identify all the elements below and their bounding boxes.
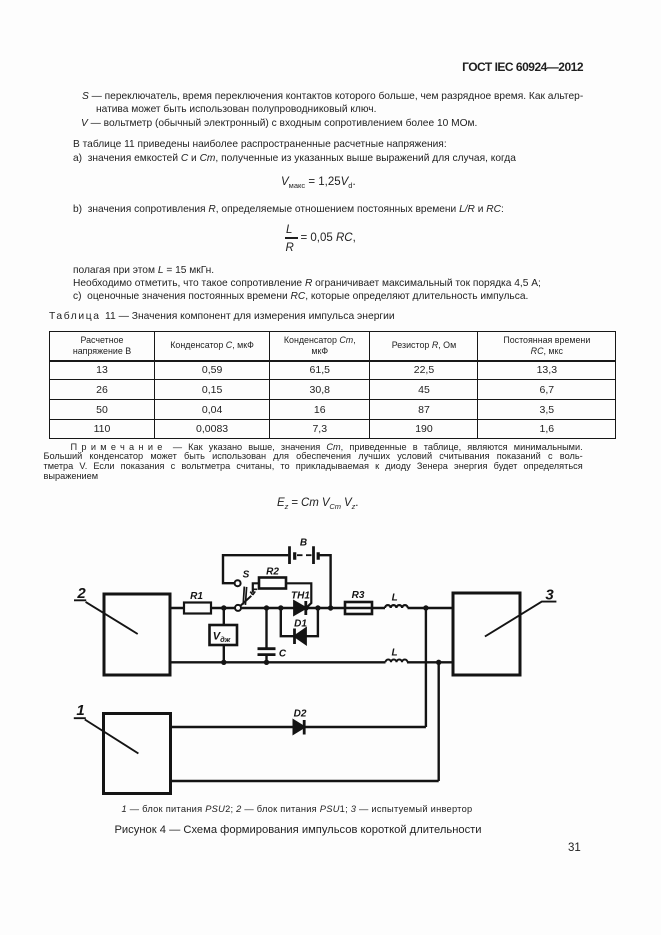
svg-text:TH1: TH1 xyxy=(291,590,310,601)
svg-text:R3: R3 xyxy=(352,590,365,601)
svg-text:L: L xyxy=(392,592,398,603)
svg-text:2: 2 xyxy=(76,585,86,602)
svg-text:C: C xyxy=(279,649,287,660)
svg-text:L: L xyxy=(391,648,397,659)
svg-text:D2: D2 xyxy=(294,709,307,720)
svg-text:3: 3 xyxy=(545,587,554,604)
svg-text:R1: R1 xyxy=(190,591,203,602)
svg-text:Vдж: Vдж xyxy=(213,631,231,645)
svg-text:D1: D1 xyxy=(294,618,307,629)
svg-text:1: 1 xyxy=(76,702,84,719)
svg-text:S: S xyxy=(243,570,250,581)
svg-text:R2: R2 xyxy=(266,567,279,578)
svg-text:B: B xyxy=(300,538,307,549)
